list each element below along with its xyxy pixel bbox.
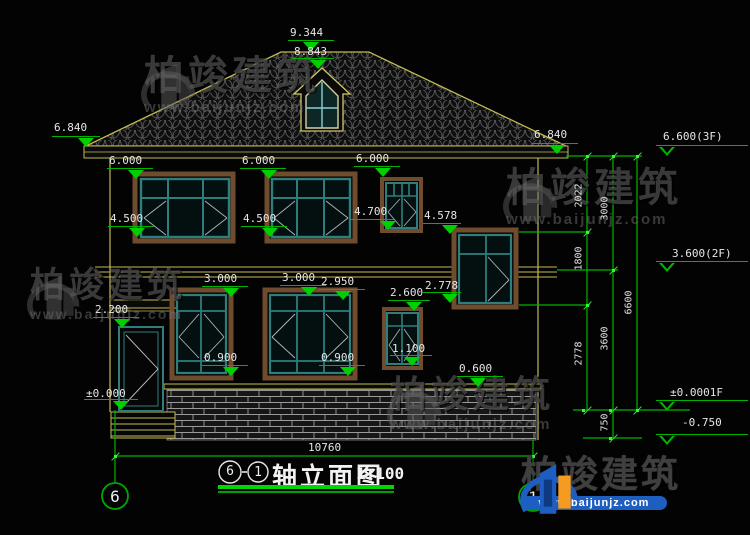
level-w2a-sill: 4.500 — [110, 212, 143, 225]
dim-2778: 2778 — [574, 336, 585, 372]
window-stair — [454, 230, 516, 307]
level-stair-top: 4.578 — [424, 209, 457, 222]
level-w1a-top: 3.000 — [204, 272, 237, 285]
level-w2c-sill: 4.700 — [354, 205, 387, 218]
level-dormer: 8.843 — [294, 45, 327, 58]
level-w1b-sill: 0.900 — [321, 351, 354, 364]
dim-6600: 6600 — [624, 285, 635, 321]
level-eave-left: 6.840 — [54, 121, 87, 134]
level-f3: 6.600(3F) — [663, 130, 723, 143]
dim-3600: 3600 — [600, 321, 611, 357]
title-axis-start: 6 — [222, 464, 238, 479]
level-ridge: 9.344 — [290, 26, 323, 39]
brick-wainscot — [167, 390, 536, 440]
level-w2b-top: 6.000 — [242, 154, 275, 167]
level-w1c-top: 2.600 — [390, 286, 423, 299]
footer-logo-icon — [518, 456, 580, 524]
axis-bubble-left: 6 — [107, 487, 123, 506]
title-axis-end: 1 — [250, 465, 266, 480]
level-w1b-lintel: 2.950 — [321, 275, 354, 288]
entry-steps — [111, 412, 175, 438]
dim-total-width: 10760 — [308, 441, 341, 454]
drawing-scale: 1:100 — [356, 464, 404, 483]
level-w2a-top: 6.000 — [109, 154, 142, 167]
window-2f-a — [135, 174, 233, 241]
level-w2b-sill: 4.500 — [243, 212, 276, 225]
level-stair-sill: 2.778 — [425, 279, 458, 292]
level-w1b-top: 3.000 — [282, 271, 315, 284]
dim-2022: 2022 — [574, 178, 585, 214]
footer-logo: 柏竣建筑 www.baijunjz.com — [518, 456, 681, 510]
dim-3000: 3000 — [600, 191, 611, 227]
level-plinth: 0.600 — [459, 362, 492, 375]
level-eave-right: 6.840 — [534, 128, 567, 141]
level-f1: ±0.0001F — [670, 386, 723, 399]
level-w1c-sill: 1.100 — [392, 342, 425, 355]
level-f2: 3.600(2F) — [672, 247, 732, 260]
dim-1800: 1800 — [574, 241, 585, 277]
cad-elevation-canvas: 柏竣建筑 www.baijunjz.com 柏竣建筑 www.baijunjz.… — [0, 0, 750, 535]
window-2f-b — [267, 174, 355, 241]
level-door-top: 2.200 — [95, 303, 128, 316]
level-w1a-sill: 0.900 — [204, 351, 237, 364]
level-w2c-top: 6.000 — [356, 152, 389, 165]
level-ground: -0.750 — [682, 416, 722, 429]
level-zero: ±0.000 — [86, 387, 126, 400]
